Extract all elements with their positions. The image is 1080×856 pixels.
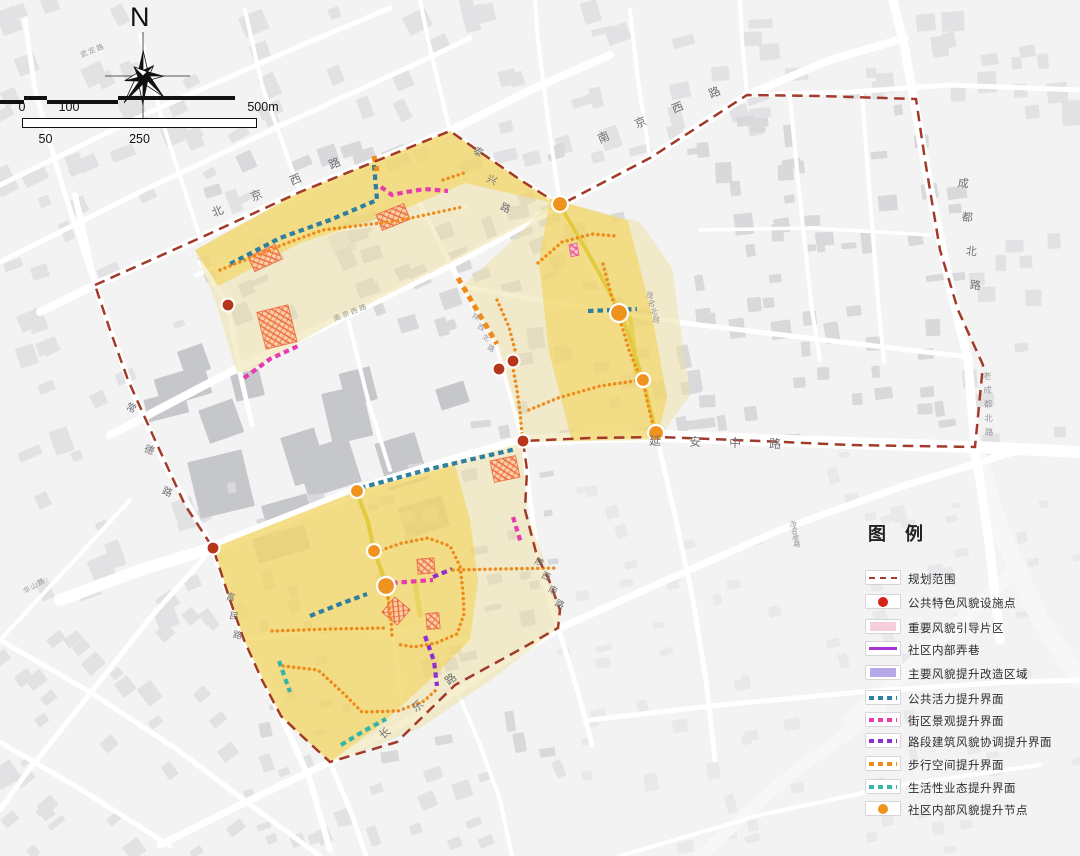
legend-item-label: 路段建筑风貌协调提升界面 bbox=[908, 734, 1052, 750]
road-label-char: 都 bbox=[961, 210, 973, 224]
legend-swatch-block-landscape-interface bbox=[866, 713, 900, 726]
community-node-point bbox=[636, 373, 650, 387]
legend-swatch-community-node bbox=[866, 802, 900, 815]
legend-item-label: 街区景观提升界面 bbox=[908, 713, 1004, 729]
road-label-char: 北 bbox=[965, 244, 977, 258]
legend-swatch-major-upgrade-area bbox=[866, 666, 900, 679]
road-label-char: 民 bbox=[229, 610, 240, 621]
road-label-char: 路 bbox=[985, 427, 994, 437]
road-label-char: 中 bbox=[729, 435, 742, 450]
legend-item-label: 公共特色风貌设施点 bbox=[908, 595, 1016, 611]
legend-item-label: 重要风貌引导片区 bbox=[908, 620, 1004, 636]
planning-boundary-symbol bbox=[869, 577, 897, 579]
scale-label: 50 bbox=[39, 132, 53, 146]
legend-swatch-community-inner-lane bbox=[866, 642, 900, 655]
public-facility-point bbox=[207, 542, 220, 555]
legend-item-label: 主要风貌提升改造区域 bbox=[908, 666, 1028, 682]
legend-item-label: 生活性业态提升界面 bbox=[908, 780, 1016, 796]
legend-swatch-lifestyle-business-interface bbox=[866, 780, 900, 793]
legend-swatch-walking-space-interface bbox=[866, 757, 900, 770]
public-facility-point bbox=[493, 363, 506, 376]
road-label-char: 路 bbox=[232, 628, 243, 640]
legend-item-label: 社区内部风貌提升节点 bbox=[908, 802, 1028, 818]
road-label-char: 安 bbox=[689, 434, 702, 449]
public-facility-point bbox=[517, 435, 530, 448]
road-label-char: 延 bbox=[649, 434, 661, 448]
road-label-char: 富 bbox=[225, 590, 236, 602]
legend-swatch-public-facility-point bbox=[866, 595, 900, 608]
community-node-point bbox=[377, 577, 395, 595]
community-node-point bbox=[367, 544, 381, 558]
legend-swatch-public-vitality-interface bbox=[866, 691, 900, 704]
community-node-point bbox=[610, 304, 628, 322]
road-label-char: 成 bbox=[983, 385, 992, 395]
road-label-char: 北 bbox=[984, 413, 993, 423]
walking-space-interface-symbol bbox=[869, 762, 897, 766]
public-facility-point bbox=[222, 299, 235, 312]
scale-label: 500m bbox=[247, 100, 278, 114]
legend-item-label: 步行空间提升界面 bbox=[908, 757, 1004, 773]
scale-bar: 0100500m50250 bbox=[0, 96, 290, 156]
building-coordination-interface-symbol bbox=[869, 739, 897, 743]
community-node-symbol bbox=[878, 804, 888, 814]
legend-swatch-planning-boundary bbox=[866, 571, 900, 584]
legend-title: 图 例 bbox=[868, 520, 930, 546]
community-node-point bbox=[350, 484, 364, 498]
community-node-point bbox=[552, 196, 568, 212]
legend: 图 例 规划范围公共特色风貌设施点重要风貌引导片区社区内部弄巷主要风貌提升改造区… bbox=[858, 518, 1080, 838]
legend-swatch-key-guidance-area bbox=[866, 620, 900, 633]
block-landscape-interface-symbol bbox=[869, 718, 897, 722]
road-label-char: 路 bbox=[769, 436, 782, 451]
public-facility-point-symbol bbox=[878, 597, 888, 607]
road-label-char: 成 bbox=[957, 176, 969, 190]
public-facility-point bbox=[507, 355, 520, 368]
key-guidance-area bbox=[417, 558, 435, 574]
legend-item-label: 公共活力提升界面 bbox=[908, 691, 1004, 707]
public-vitality-interface-symbol bbox=[869, 696, 897, 700]
community-inner-lane-symbol bbox=[869, 647, 897, 650]
key-guidance-area-symbol bbox=[870, 622, 896, 631]
road-label-char: 路 bbox=[969, 278, 981, 292]
scale-label: 250 bbox=[129, 132, 150, 146]
planning-map: 北京西路南京西路南京西路泰兴路茂名北路延安中路成都北路老成都北路常德路富民路长乐… bbox=[0, 0, 1080, 856]
legend-item-label: 规划范围 bbox=[908, 571, 956, 587]
road-label-char: 都 bbox=[984, 399, 993, 409]
scale-bar-ruler bbox=[22, 118, 257, 128]
key-guidance-area bbox=[426, 612, 440, 629]
major-upgrade-area-symbol bbox=[870, 668, 896, 677]
road-label-char: 老 bbox=[983, 371, 992, 381]
legend-swatch-building-coordination-interface bbox=[866, 734, 900, 747]
lifestyle-business-interface-symbol bbox=[869, 785, 897, 789]
key-guidance-area bbox=[569, 243, 579, 256]
legend-item-label: 社区内部弄巷 bbox=[908, 642, 980, 658]
north-label: N bbox=[130, 2, 150, 33]
